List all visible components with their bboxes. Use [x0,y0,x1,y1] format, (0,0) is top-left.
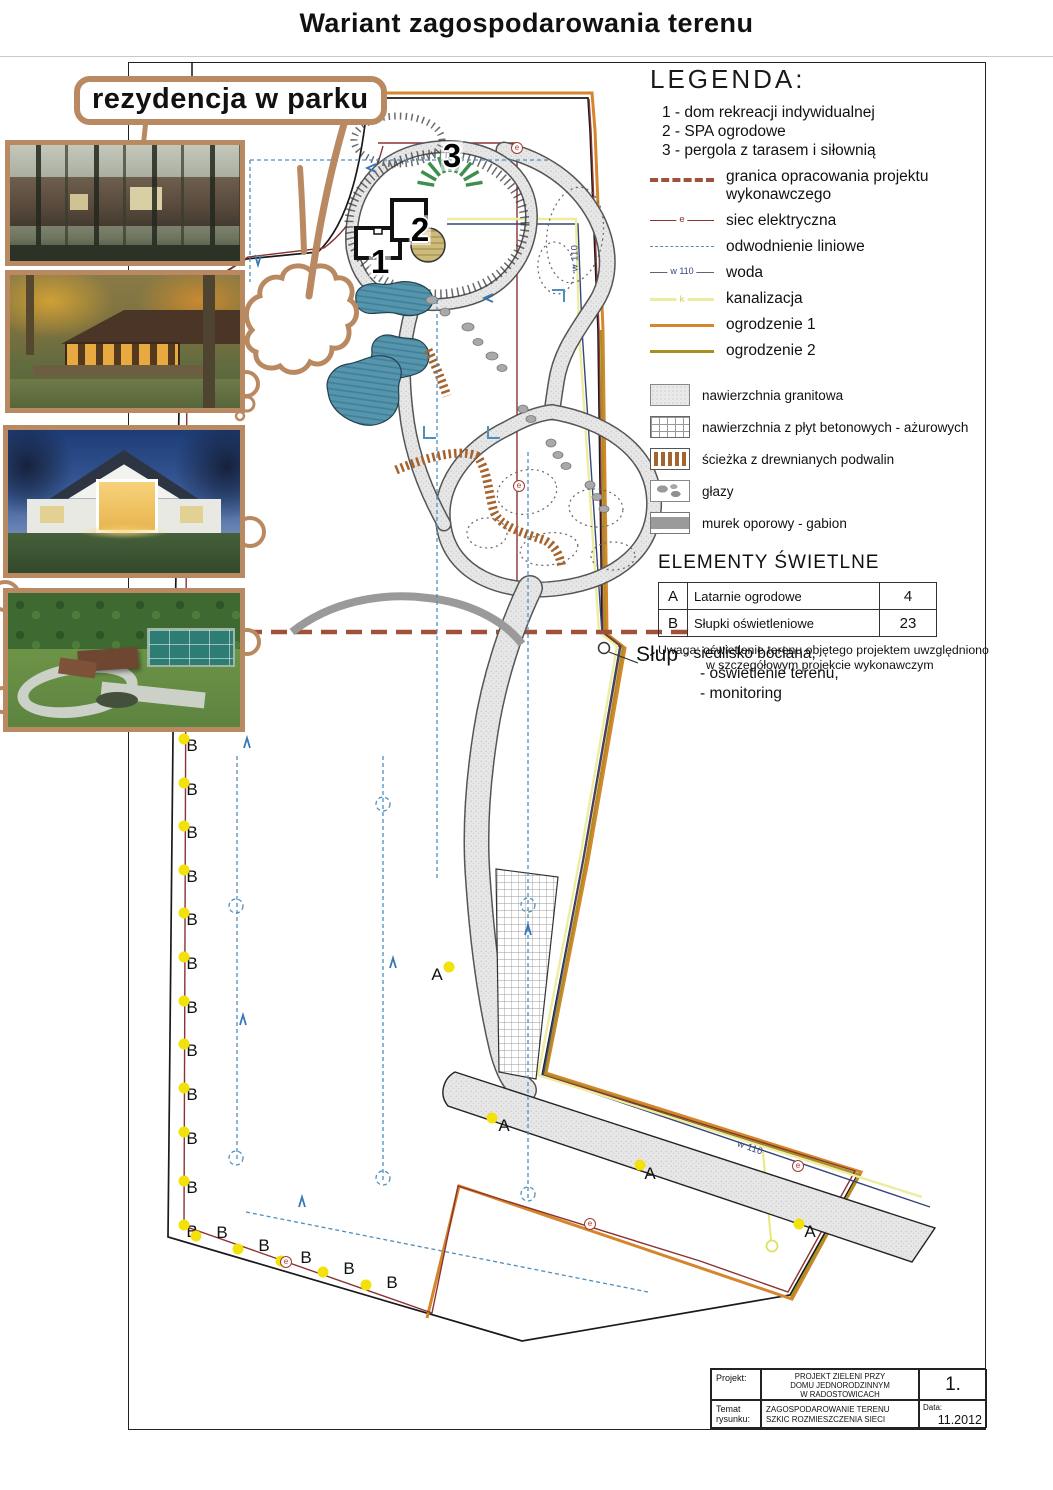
photo2-terrace [33,365,203,377]
lighting-table: A Latarnie ogrodowe 4 B Słupki oświetlen… [658,582,937,637]
date-cell: Data: 11.2012 [919,1400,987,1428]
legend-row-fence1: ogrodzenie 1 [650,316,990,334]
boulders-swatch [650,480,690,502]
driveway-band [443,1072,935,1262]
photo2-cabin-roof [61,310,245,344]
legend-surface-boulders: głazy [650,480,990,502]
photo2-tree-trunk [26,275,34,355]
photo3-lawn [8,533,240,573]
project-label: Projekt: [711,1369,761,1400]
photo-modern-forest-house [5,140,245,266]
handwritten-annotation-label: rezydencja w parku [74,76,387,125]
lighting-heading: ELEMENTY ŚWIETLNE [658,552,990,574]
legend-row-drainage: odwodnienie liniowe [650,238,990,256]
photo1-t tree-trunks [10,145,240,261]
gabion-swatch [650,512,690,534]
title-block: Projekt: PROJEKT ZIELENI PRZY DOMU JEDNO… [710,1368,986,1429]
fence2-line-symbol [650,350,714,353]
photo2-tree-trunk [203,275,215,408]
photo3-window [40,506,63,523]
photo4-tennis-court [147,628,235,667]
photo3-light-glow [78,524,171,538]
project-value: PROJEKT ZIELENI PRZY DOMU JEDNORODZINNYM… [761,1369,919,1400]
fence1-line-symbol [650,324,714,327]
legend-heading: LEGENDA: [650,64,990,95]
photo-autumn-log-cabin [5,270,245,413]
legend-row-granica: granica opracowania projektu wykonawczeg… [650,168,990,204]
stork-pole-note: Słup - siedlisko bociana, - oświetlenie … [636,644,839,704]
granica-dashed-symbol [650,178,714,182]
legend-item-1: 1 - dom rekreacji indywidualnej [662,103,990,122]
legend-item-2: 2 - SPA ogrodowe [662,122,990,141]
plates-swatch [650,416,690,438]
drainage-dashed-symbol [650,246,714,247]
legend-surface-plates: nawierzchnia z płyt betonowych - ażurowy… [650,416,990,438]
sewer-line-symbol: k [650,298,714,301]
site-plan-page: Wariant zagospodarowania terenu [0,0,1053,1490]
pole-note-title: Słup [636,644,678,666]
legend-surface-granite: nawierzchnia granitowa [650,384,990,406]
legend-surface-gabion: murek oporowy - gabion [650,512,990,534]
table-row: A Latarnie ogrodowe 4 [659,583,937,610]
photo-white-house-dusk [3,425,245,578]
water-line-symbol: w 110 [650,272,714,273]
photo1-ground [10,245,240,261]
spa-pool-circle [411,228,445,262]
subject-label: Temat rysunku: [711,1400,761,1428]
electric-line-symbol: e [650,220,714,221]
date-value: 11.2012 [923,1413,986,1427]
gabion-wall-arc [292,596,522,644]
legend-row-fence2: ogrodzenie 2 [650,342,990,360]
legend-row-water: w 110 woda [650,264,990,282]
legend-row-electric: e siec elektryczna [650,212,990,230]
legend-row-sewer: k kanalizacja [650,290,990,308]
photo3-window [180,506,203,523]
photo-aerial-estate [3,588,245,732]
table-row: B Słupki oświetleniowe 23 [659,610,937,637]
wood-path-swatch [650,448,690,470]
legend-item-3: 3 - pergola z tarasem i siłownią [662,141,990,160]
legend-panel: LEGENDA: 1 - dom rekreacji indywidualnej… [650,64,990,673]
legend-surface-wood: ścieżka z drewnianych podwalin [650,448,990,470]
granite-swatch [650,384,690,406]
subject-value: ZAGOSPODAROWANIE TERENU SZKIC ROZMIESZCZ… [761,1400,919,1428]
sheet-number: 1. [919,1369,987,1400]
